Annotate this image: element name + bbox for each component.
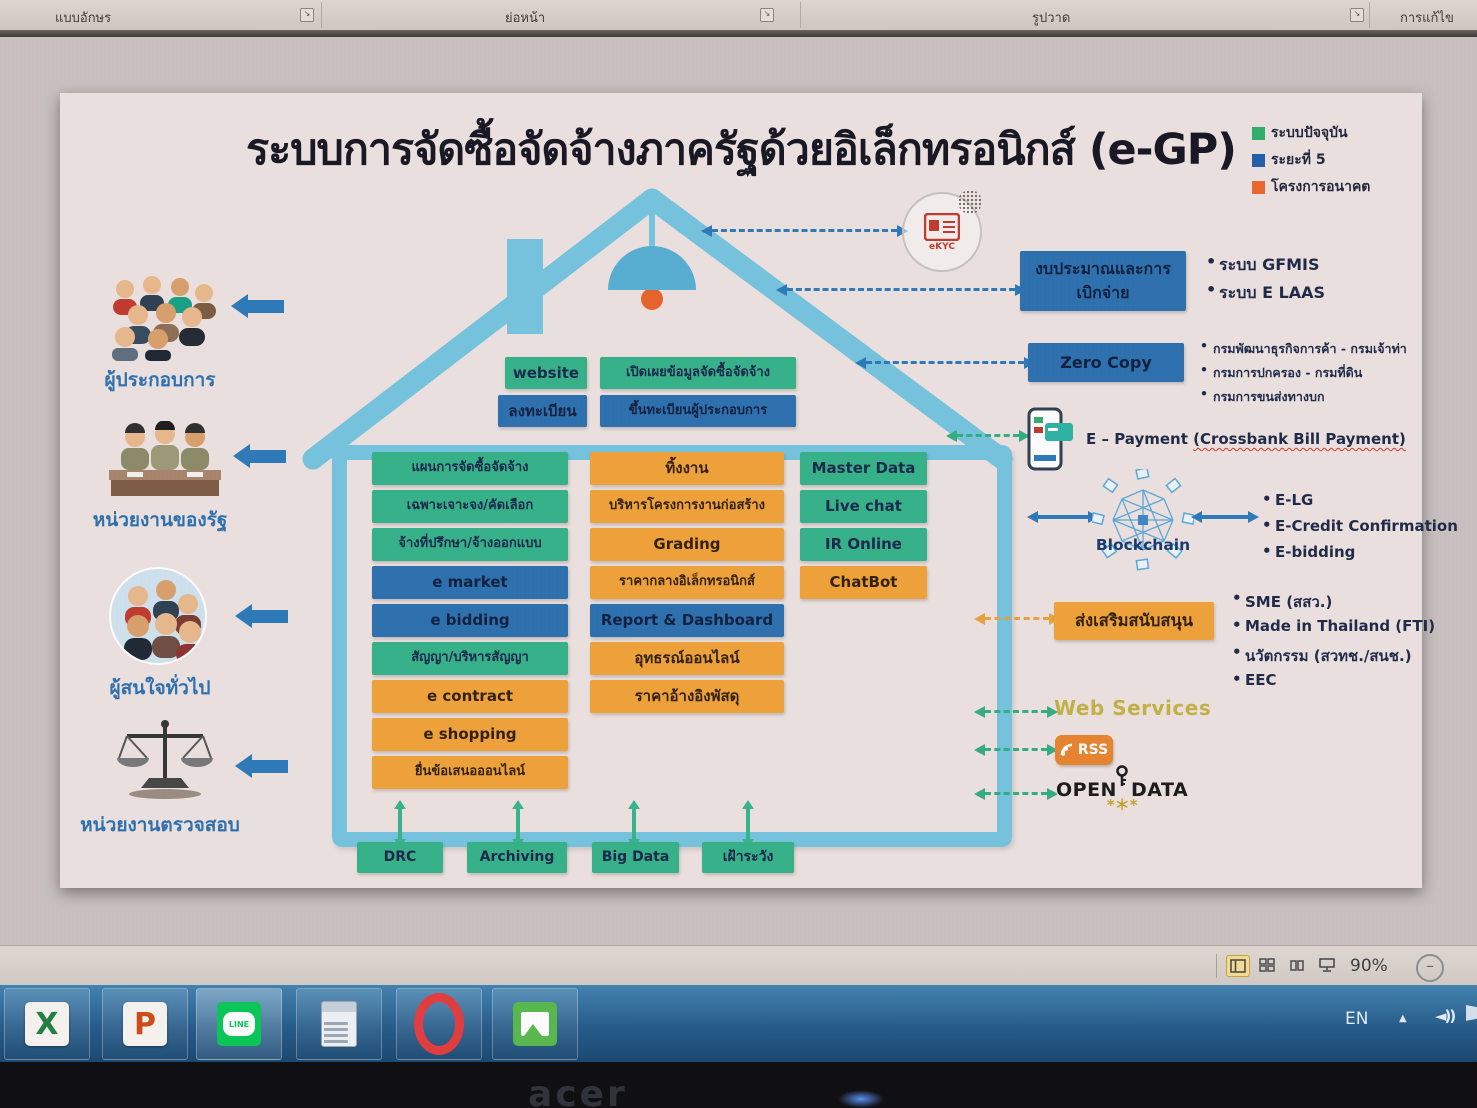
ribbon-shadow bbox=[0, 30, 1477, 37]
laptop-bezel: acer bbox=[0, 1062, 1477, 1108]
diagram-box: ChatBot bbox=[800, 566, 927, 599]
id-card-icon bbox=[924, 213, 960, 241]
bullet-eec: EEC bbox=[1232, 671, 1277, 689]
line-icon: LINE bbox=[217, 1002, 261, 1046]
globe-dots-icon bbox=[958, 190, 982, 214]
house-column-right: Master Data Live chat IR Online ChatBot bbox=[800, 452, 927, 599]
diagram-box-zero-copy: Zero Copy bbox=[1028, 343, 1184, 382]
diagram-box: จ้างที่ปรึกษา/จ้างออกแบบ bbox=[372, 528, 568, 561]
general-public-icon bbox=[108, 566, 208, 666]
legend-swatch-blue bbox=[1252, 154, 1265, 167]
arrow-left-icon bbox=[250, 450, 286, 463]
dashed-arrow-open-data bbox=[985, 792, 1047, 795]
epayment-paren: (Crossbank Bill Payment) bbox=[1193, 430, 1406, 448]
bullet-elaas: ระบบ E LAAS bbox=[1206, 281, 1325, 306]
diagram-box-website: website bbox=[505, 357, 587, 389]
opera-icon bbox=[414, 993, 464, 1055]
house-column-middle: ทิ้งงาน บริหารโครงการงานก่อสร้าง Grading… bbox=[590, 452, 784, 713]
ribbon-group-editing: การแก้ไข bbox=[1400, 7, 1454, 28]
dashed-arrow-zero-copy bbox=[866, 361, 1024, 364]
ekyc-icon: eKYC bbox=[902, 192, 982, 272]
vertical-arrow-icon bbox=[632, 809, 636, 839]
legend-label: ระบบปัจจุบัน bbox=[1271, 122, 1348, 144]
diagram-box-vendor-register: ขึ้นทะเบียนผู้ประกอบการ bbox=[600, 395, 796, 427]
dialog-launcher-icon[interactable]: ↘ bbox=[1350, 8, 1364, 22]
epayment-text: E – Payment bbox=[1086, 430, 1188, 448]
bullet-zero-copy-3: กรมการขนส่งทางบก bbox=[1200, 387, 1325, 407]
taskbar-powerpoint-button[interactable]: P bbox=[102, 988, 188, 1060]
ribbon-group-font: แบบอักษร bbox=[55, 7, 111, 28]
blockchain-icon bbox=[1092, 469, 1194, 571]
reading-view-button[interactable] bbox=[1286, 955, 1308, 975]
stakeholder-label-audit: หน่วยงานตรวจสอบ bbox=[65, 810, 255, 840]
vertical-arrow-icon bbox=[398, 809, 402, 839]
line-label: LINE bbox=[229, 1020, 249, 1029]
legend-item-phase5: ระยะที่ 5 bbox=[1252, 150, 1326, 170]
brand-logo: acer bbox=[528, 1074, 628, 1108]
vertical-arrow-icon bbox=[516, 809, 520, 839]
diagram-box-support: ส่งเสริมสนับสนุน bbox=[1054, 602, 1214, 640]
double-arrow-blockchain-right bbox=[1202, 515, 1248, 519]
diagram-box-big-data: Big Data bbox=[592, 842, 679, 873]
arrow-left-icon bbox=[248, 300, 284, 313]
dashed-arrow-web-services bbox=[985, 710, 1047, 713]
diagram-box: บริหารโครงการงานก่อสร้าง bbox=[590, 490, 784, 523]
diagram-box: ราคาอ้างอิงพัสดุ bbox=[590, 680, 784, 713]
bullet-mit: Made in Thailand (FTI) bbox=[1232, 617, 1435, 635]
diagram-box-monitoring: เฝ้าระวัง bbox=[702, 842, 794, 873]
diagram-box: Live chat bbox=[800, 490, 927, 523]
diagram-box: IR Online bbox=[800, 528, 927, 561]
web-services-label: Web Services bbox=[1054, 696, 1211, 720]
house-column-left: แผนการจัดซื้อจัดจ้าง เฉพาะเจาะจง/คัดเลือ… bbox=[372, 452, 568, 789]
mobile-payment-icon bbox=[1025, 407, 1077, 471]
diagram-box-disclosure: เปิดเผยข้อมูลจัดซื้อจัดจ้าง bbox=[600, 357, 796, 389]
rss-label: RSS bbox=[1078, 742, 1108, 758]
sparkle-icon: *＊* bbox=[1107, 801, 1138, 809]
dashed-arrow-support bbox=[985, 617, 1049, 620]
stakeholder-label-government: หน่วยงานของรัฐ bbox=[70, 505, 250, 535]
open-data-word2: DATA bbox=[1131, 779, 1188, 801]
rss-icon bbox=[1060, 743, 1074, 757]
taskbar-calculator-button[interactable] bbox=[296, 988, 382, 1060]
ribbon-group-drawing: รูปวาด bbox=[1032, 7, 1070, 28]
zoom-level: 90% bbox=[1350, 956, 1388, 976]
legend-item-current: ระบบปัจจุบัน bbox=[1252, 123, 1348, 143]
speaker-icon[interactable]: ◄)) bbox=[1435, 1007, 1454, 1025]
legend-label: โครงการอนาคต bbox=[1271, 176, 1370, 198]
arrow-left-icon bbox=[252, 610, 288, 623]
excel-icon: X bbox=[25, 1002, 69, 1046]
stakeholder-label-public: ผู้สนใจทั่วไป bbox=[75, 673, 245, 703]
diagram-box-drc: DRC bbox=[357, 842, 443, 873]
show-hidden-icons-button[interactable]: ▲ bbox=[1399, 1013, 1407, 1024]
slide-sorter-view-button[interactable] bbox=[1256, 955, 1278, 975]
bullet-elg: E-LG bbox=[1262, 491, 1313, 509]
ribbon: แบบอักษร ↘ ย่อหน้า ↘ รูปวาด ↘ การแก้ไข bbox=[0, 0, 1477, 31]
stakeholder-label-entrepreneurs: ผู้ประกอบการ bbox=[75, 365, 245, 395]
power-led-glow bbox=[838, 1090, 884, 1108]
bullet-zero-copy-1: กรมพัฒนาธุรกิจการค้า - กรมเจ้าท่า bbox=[1200, 339, 1407, 359]
taskbar-line-button[interactable]: LINE bbox=[196, 988, 282, 1060]
diagram-box: ทิ้งงาน bbox=[590, 452, 784, 485]
slideshow-view-button[interactable] bbox=[1316, 955, 1338, 975]
diagram-box: e contract bbox=[372, 680, 568, 713]
taskbar: X P LINE EN ▲ ◄)) bbox=[0, 985, 1477, 1062]
epayment-label: E – Payment (Crossbank Bill Payment) bbox=[1086, 430, 1406, 448]
diagram-box: ยื่นข้อเสนอออนไลน์ bbox=[372, 756, 568, 789]
calculator-icon bbox=[321, 1001, 357, 1047]
language-indicator[interactable]: EN bbox=[1345, 1009, 1368, 1029]
taskbar-photo-viewer-button[interactable] bbox=[492, 988, 578, 1060]
diagram-box: e shopping bbox=[372, 718, 568, 751]
bullet-sme: SME (สสว.) bbox=[1232, 590, 1332, 614]
bullet-ecredit: E-Credit Confirmation bbox=[1262, 517, 1458, 535]
rss-badge: RSS bbox=[1055, 735, 1113, 765]
dialog-launcher-icon[interactable]: ↘ bbox=[300, 8, 314, 22]
ribbon-divider bbox=[800, 2, 801, 28]
slide-title: ระบบการจัดซื้อจัดจ้างภาครัฐด้วยอิเล็กทรอ… bbox=[60, 115, 1422, 183]
ribbon-divider bbox=[1369, 2, 1370, 28]
legend-swatch-green bbox=[1252, 127, 1265, 140]
diagram-box: e market bbox=[372, 566, 568, 599]
legend-swatch-orange bbox=[1252, 181, 1265, 194]
diagram-box: อุทธรณ์ออนไลน์ bbox=[590, 642, 784, 675]
ribbon-divider bbox=[321, 2, 322, 28]
diagram-box: Grading bbox=[590, 528, 784, 561]
zoom-out-button[interactable]: – bbox=[1416, 954, 1444, 982]
budget-line1: งบประมาณและการ bbox=[1035, 257, 1171, 281]
crowd-icon bbox=[100, 273, 225, 361]
double-arrow-blockchain-left bbox=[1038, 515, 1088, 519]
bullet-innovation: นวัตกรรม (สวทช./สนช.) bbox=[1232, 644, 1412, 668]
open-data-logo: OPEN DATA *＊* bbox=[1056, 765, 1188, 809]
screen: แบบอักษร ↘ ย่อหน้า ↘ รูปวาด ↘ การแก้ไข ร… bbox=[0, 0, 1477, 1108]
normal-view-button[interactable] bbox=[1226, 955, 1250, 977]
dashed-arrow-ekyc bbox=[712, 229, 897, 232]
blockchain-label: Blockchain bbox=[1088, 536, 1198, 554]
slide-canvas: ระบบการจัดซื้อจัดจ้างภาครัฐด้วยอิเล็กทรอ… bbox=[60, 93, 1422, 888]
arrow-left-icon bbox=[252, 760, 288, 773]
photo-viewer-icon bbox=[513, 1002, 557, 1046]
bullet-gfmis: ระบบ GFMIS bbox=[1206, 253, 1320, 278]
diagram-box: แผนการจัดซื้อจัดจ้าง bbox=[372, 452, 568, 485]
taskbar-excel-button[interactable]: X bbox=[4, 988, 90, 1060]
diagram-box: สัญญา/บริหารสัญญา bbox=[372, 642, 568, 675]
action-center-flag-icon[interactable] bbox=[1466, 1005, 1477, 1027]
budget-line2: เบิกจ่าย bbox=[1076, 281, 1129, 305]
taskbar-opera-button[interactable] bbox=[396, 988, 482, 1060]
diagram-box: e bidding bbox=[372, 604, 568, 637]
dashed-arrow-epayment bbox=[957, 434, 1019, 437]
diagram-box: เฉพาะเจาะจง/คัดเลือก bbox=[372, 490, 568, 523]
ekyc-label: eKYC bbox=[929, 242, 955, 252]
diagram-box-archiving: Archiving bbox=[467, 842, 567, 873]
diagram-box: ราคากลางอิเล็กทรอนิกส์ bbox=[590, 566, 784, 599]
scales-icon bbox=[115, 716, 215, 804]
diagram-box: Report & Dashboard bbox=[590, 604, 784, 637]
diagram-box-register: ลงทะเบียน bbox=[498, 395, 587, 427]
dashed-arrow-rss bbox=[985, 748, 1047, 751]
legend-label: ระยะที่ 5 bbox=[1271, 149, 1326, 171]
vertical-arrow-icon bbox=[746, 809, 750, 839]
dashed-arrow-budget bbox=[787, 288, 1015, 291]
diagram-box: Master Data bbox=[800, 452, 927, 485]
status-divider bbox=[1216, 954, 1217, 978]
bullet-ebidding: E-bidding bbox=[1262, 543, 1355, 561]
status-bar: 90% – bbox=[0, 945, 1477, 986]
dialog-launcher-icon[interactable]: ↘ bbox=[760, 8, 774, 22]
legend-item-future: โครงการอนาคต bbox=[1252, 177, 1370, 197]
diagram-box-budget: งบประมาณและการ เบิกจ่าย bbox=[1020, 251, 1186, 311]
bullet-zero-copy-2: กรมการปกครอง - กรมที่ดิน bbox=[1200, 363, 1362, 383]
government-officials-icon bbox=[105, 421, 225, 501]
ribbon-group-paragraph: ย่อหน้า bbox=[505, 7, 545, 28]
powerpoint-icon: P bbox=[123, 1002, 167, 1046]
